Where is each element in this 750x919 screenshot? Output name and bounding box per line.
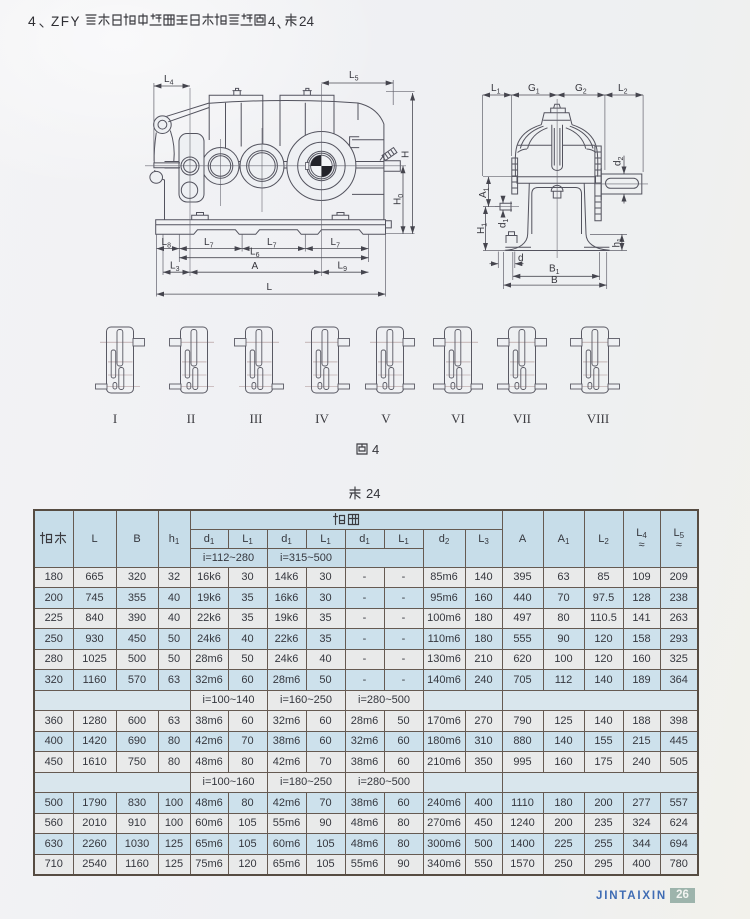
svg-text:h1: h1 <box>612 238 625 248</box>
svg-text:L8: L8 <box>162 237 172 250</box>
svg-text:4: 4 <box>268 14 276 29</box>
svg-text:G1: G1 <box>528 83 540 96</box>
svg-text:ZFY: ZFY <box>51 14 81 29</box>
svg-text:d1: d1 <box>498 218 511 228</box>
svg-text:24: 24 <box>299 14 315 29</box>
svg-text:B1: B1 <box>549 264 560 277</box>
svg-text:A: A <box>252 261 259 272</box>
svg-text:4: 4 <box>28 13 36 29</box>
svg-text:L3: L3 <box>170 261 180 274</box>
svg-text:H1: H1 <box>476 223 489 234</box>
svg-text:L7: L7 <box>267 237 277 250</box>
svg-text:L2: L2 <box>618 83 628 96</box>
svg-text:A1: A1 <box>478 187 491 198</box>
svg-text:H: H <box>401 151 412 158</box>
svg-text:d2: d2 <box>613 156 626 166</box>
svg-text:L: L <box>267 282 273 293</box>
svg-text:L7: L7 <box>331 237 341 250</box>
svg-text:L4: L4 <box>164 74 174 87</box>
svg-text:H0: H0 <box>393 194 406 205</box>
svg-text:24: 24 <box>366 486 380 501</box>
svg-text:G2: G2 <box>575 83 587 96</box>
svg-text:L5: L5 <box>349 70 359 83</box>
svg-text:L7: L7 <box>204 237 214 250</box>
svg-text:4: 4 <box>372 442 379 457</box>
svg-text:B: B <box>551 275 558 286</box>
svg-text:d: d <box>518 253 524 264</box>
svg-text:L1: L1 <box>491 83 501 96</box>
svg-text:L9: L9 <box>338 261 348 274</box>
